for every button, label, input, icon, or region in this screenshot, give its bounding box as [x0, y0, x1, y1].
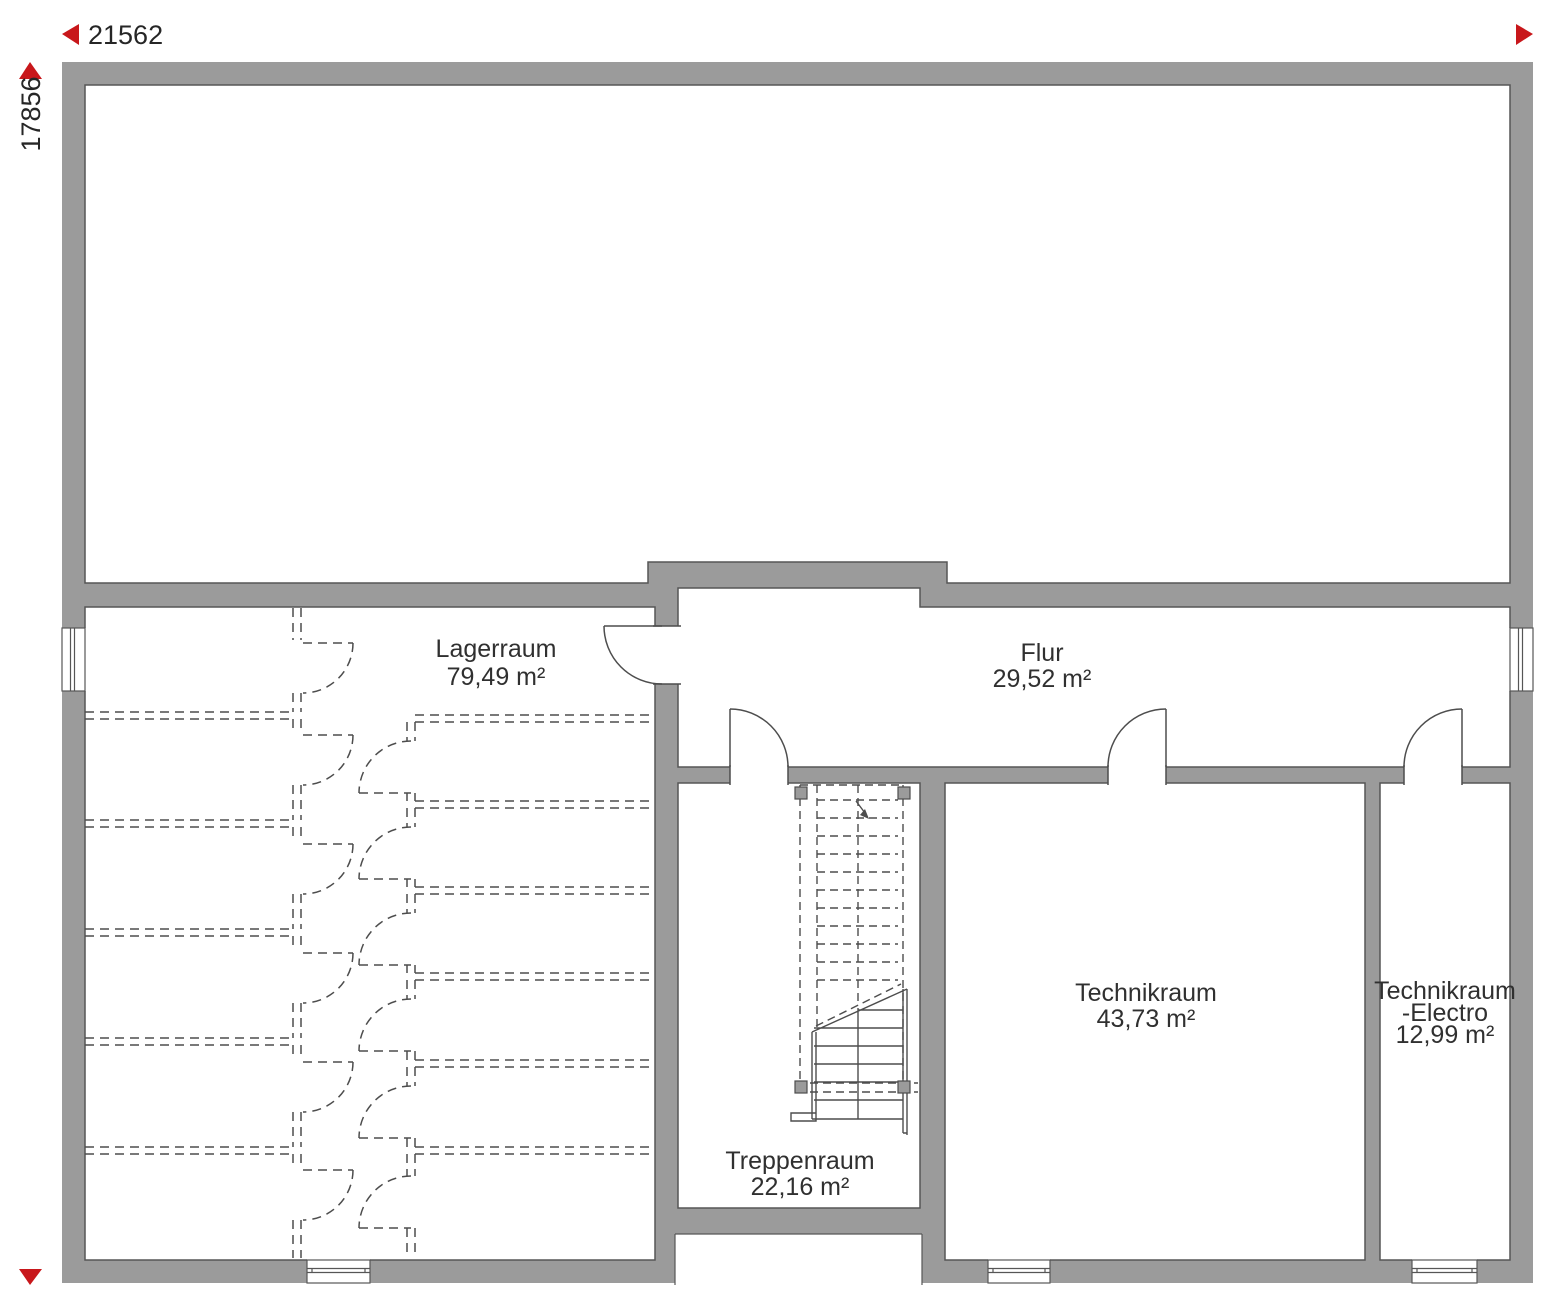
window-bottom-lagerraum: [307, 1259, 370, 1284]
exterior-recess: [675, 1234, 922, 1287]
triangle-up-icon: [19, 62, 42, 79]
floor-plan-page: Lagerraum 79,49 m² Flur 29,52 m² Treppen…: [0, 0, 1556, 1310]
dimension-width-value: 21562: [88, 20, 163, 50]
triangle-down-icon: [19, 1269, 42, 1285]
room-floors: [85, 85, 1510, 1287]
label-technikraum-electro-area: 12,99 m²: [1396, 1021, 1495, 1049]
dimension-horizontal: 21562: [62, 20, 1533, 50]
label-technikraum-area: 43,73 m²: [1097, 1005, 1196, 1033]
window-bottom-electro: [1412, 1259, 1477, 1284]
stair-post: [898, 787, 910, 799]
room-flur-floor: [678, 588, 1510, 767]
stair-post: [898, 1081, 910, 1093]
stair-post: [795, 787, 807, 799]
label-lagerraum-area: 79,49 m²: [447, 663, 546, 691]
label-lagerraum-name: Lagerraum: [436, 635, 557, 663]
window-right: [1509, 628, 1534, 691]
triangle-left-icon: [62, 24, 79, 45]
label-flur-name: Flur: [1020, 639, 1063, 667]
room-top-floor: [85, 85, 1510, 583]
floor-plan: Lagerraum 79,49 m² Flur 29,52 m² Treppen…: [0, 0, 1556, 1310]
label-flur-area: 29,52 m²: [993, 665, 1092, 693]
room-treppenraum-floor: [678, 783, 920, 1208]
window-left: [61, 628, 86, 691]
label-treppenraum-area: 22,16 m²: [751, 1173, 850, 1201]
dimension-height-value: 17856: [16, 76, 46, 151]
label-technikraum-name: Technikraum: [1075, 979, 1217, 1007]
dimension-vertical: 17856: [16, 62, 46, 1285]
window-bottom-technikraum: [988, 1259, 1050, 1284]
label-treppenraum-name: Treppenraum: [725, 1147, 874, 1175]
stair-post: [795, 1081, 807, 1093]
triangle-right-icon: [1516, 24, 1533, 45]
